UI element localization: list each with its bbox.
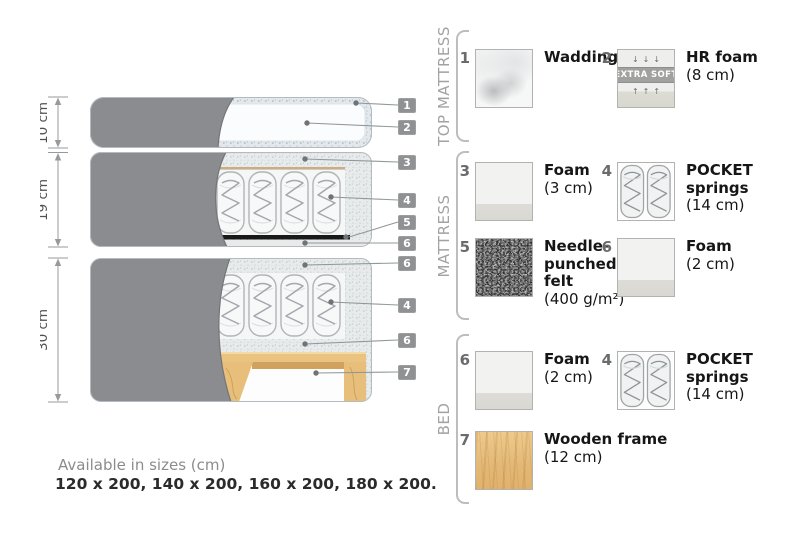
item-number: 7 [456, 431, 470, 490]
item-number: 6 [598, 238, 612, 297]
item-label: Wooden frame (12 cm) [544, 431, 674, 490]
pocket-springs-icon [618, 352, 674, 409]
mattress-construction-infographic: { "diagram": { "size_labels": ["10 cm", … [0, 0, 800, 533]
item-number: 6 [456, 351, 470, 410]
pocket-springs-swatch [617, 351, 675, 410]
callout-tag-4b: 4 [398, 298, 416, 313]
available-sizes-values: 120 x 200, 140 x 200, 160 x 200, 180 x 2… [55, 475, 437, 493]
pocket-springs-swatch [617, 162, 675, 221]
item-number: 3 [456, 162, 470, 221]
hr-foam-swatch: ↓↓↓ EXTRA SOFT ↑↑↑ [617, 49, 675, 108]
section-title-top-mattress: TOP MATTRESS [435, 26, 453, 146]
arrows-up-icon: ↑↑↑ [618, 87, 674, 96]
dimension-19cm [48, 153, 68, 248]
callout-tag-5: 5 [398, 215, 416, 230]
item-label: Foam (2 cm) [686, 238, 778, 297]
dim-label-30cm: 30 cm [40, 309, 51, 351]
callout-tag-2: 2 [398, 120, 416, 135]
callout-tag-6a: 6 [398, 236, 416, 251]
legend-item-wooden-frame: 7 Wooden frame (12 cm) [456, 431, 674, 490]
mattress-illustration [90, 152, 372, 247]
arrows-down-icon: ↓↓↓ [618, 55, 674, 64]
bed-illustration [90, 258, 372, 402]
legend-item-pocket-springs-mattress: 4 POCKET springs (14 cm) [598, 162, 778, 221]
item-number: 1 [456, 49, 470, 108]
dim-label-19cm: 19 cm [40, 179, 51, 221]
section-title-mattress: MATTRESS [435, 194, 453, 277]
item-number: 5 [456, 238, 470, 309]
callout-tag-6b: 6 [398, 256, 416, 271]
foam-swatch [475, 351, 533, 410]
wood-swatch [475, 431, 533, 490]
dimension-30cm [48, 258, 68, 402]
callout-tag-1: 1 [398, 98, 416, 113]
item-label: POCKET springs (14 cm) [686, 351, 778, 410]
item-number: 2 [598, 49, 612, 108]
legend-item-foam-2cm-mattress: 6 Foam (2 cm) [598, 238, 778, 297]
available-sizes-caption: Available in sizes (cm) [58, 456, 225, 474]
item-number: 4 [598, 162, 612, 221]
foam-swatch [475, 162, 533, 221]
extra-soft-badge: EXTRA SOFT [617, 67, 675, 83]
legend-item-hr-foam: 2 ↓↓↓ EXTRA SOFT ↑↑↑ HR foam (8 cm) [598, 49, 778, 108]
pocket-springs-icon [618, 163, 674, 220]
top-mattress-illustration [90, 97, 372, 148]
item-number: 4 [598, 351, 612, 410]
item-label: HR foam (8 cm) [686, 49, 778, 108]
callout-tag-7: 7 [398, 365, 416, 380]
dim-label-10cm: 10 cm [40, 102, 51, 144]
callout-tag-6c: 6 [398, 333, 416, 348]
wadding-swatch [475, 49, 533, 108]
callout-tag-3: 3 [398, 155, 416, 170]
section-title-bed: BED [435, 403, 453, 436]
callout-tag-4: 4 [398, 193, 416, 208]
felt-swatch [475, 238, 533, 297]
foam-swatch [617, 238, 675, 297]
legend-item-pocket-springs-bed: 4 POCKET springs (14 cm) [598, 351, 778, 410]
dimension-10cm [48, 97, 68, 148]
bed-cross-section-diagram: 10 cm 19 cm 30 cm [40, 85, 420, 415]
item-label: POCKET springs (14 cm) [686, 162, 778, 221]
